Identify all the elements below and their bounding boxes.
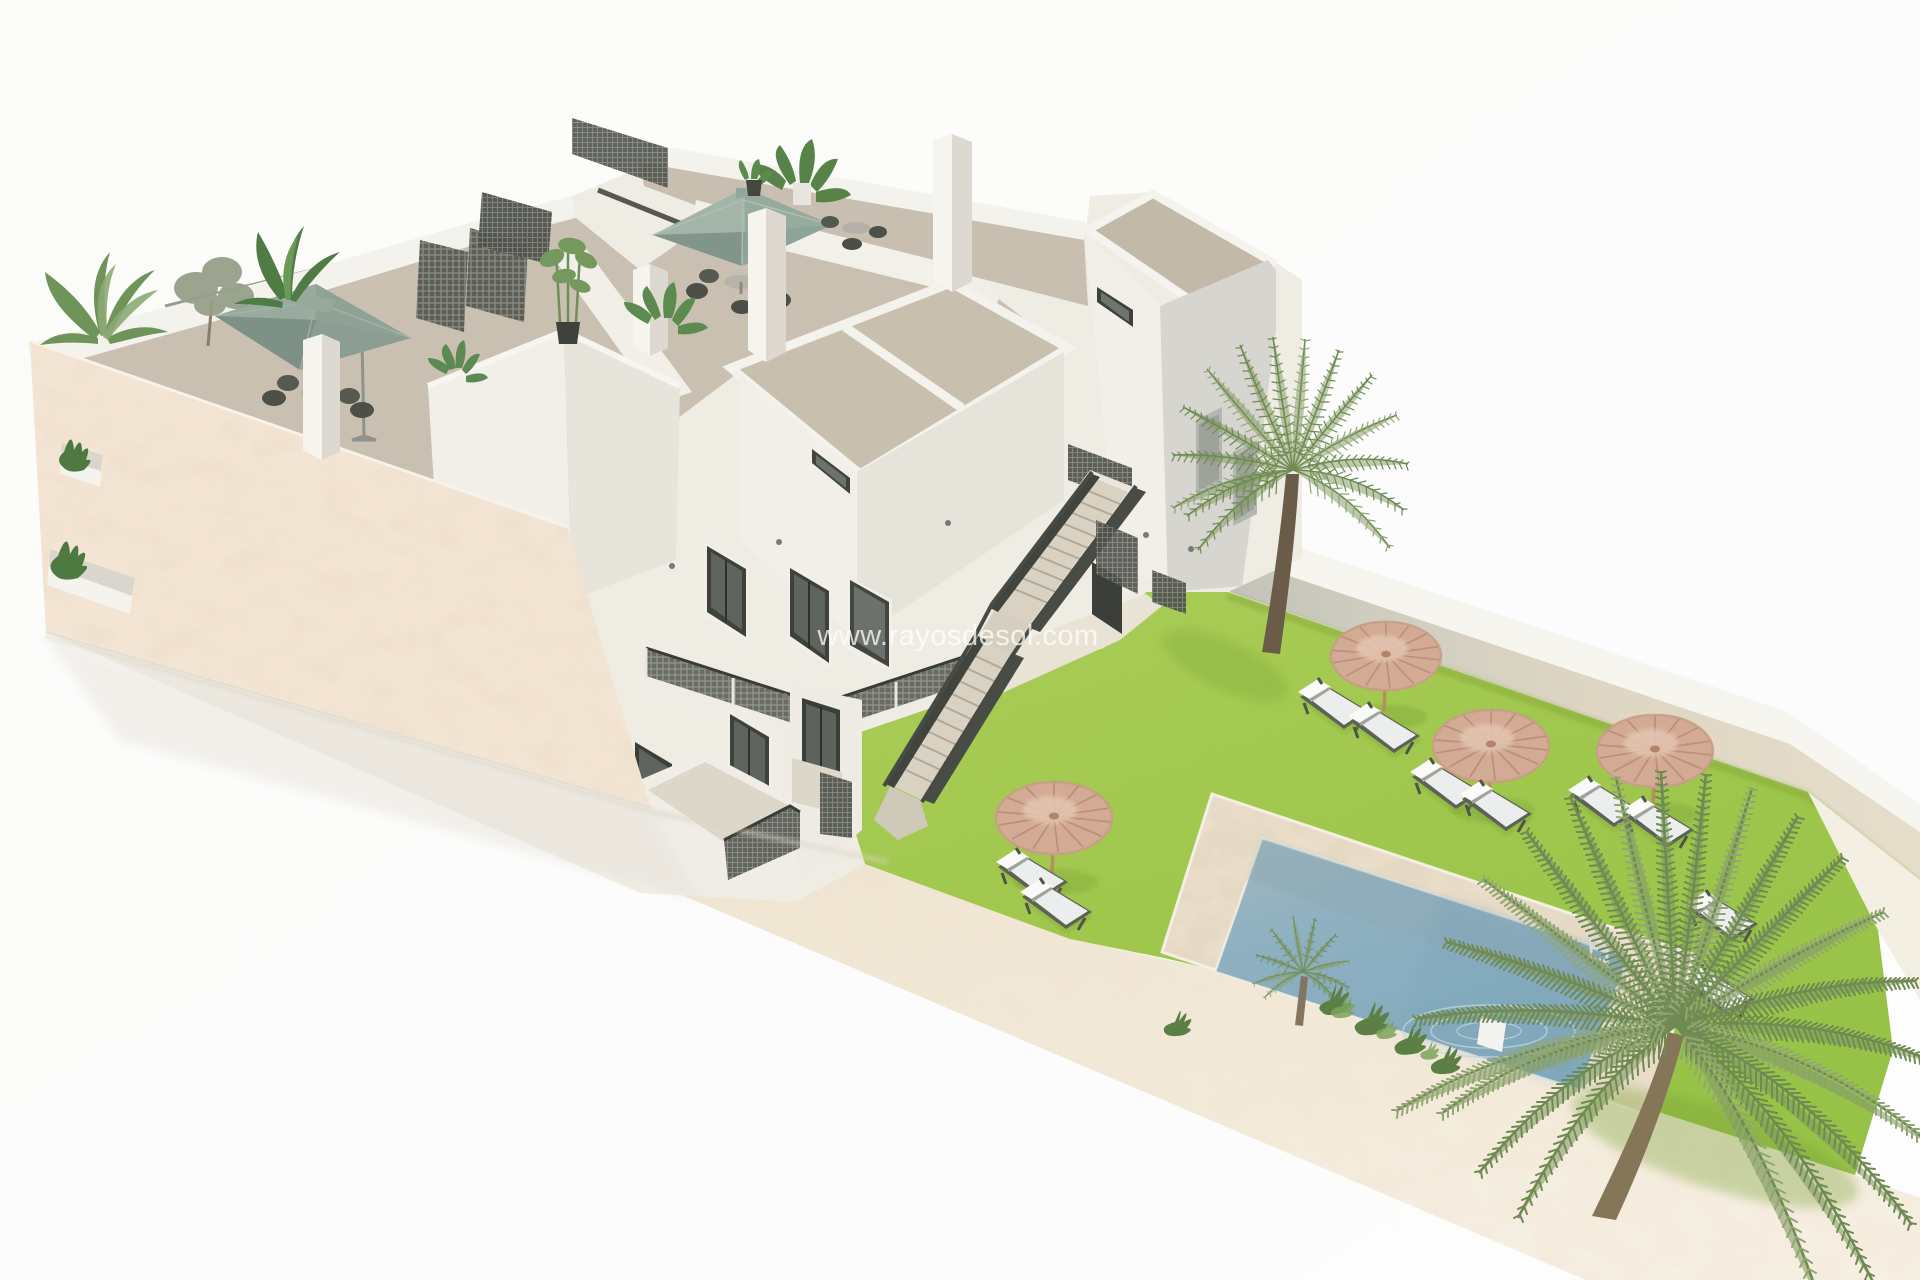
svg-text:www.rayosdesol.com: www.rayosdesol.com bbox=[816, 620, 1098, 652]
